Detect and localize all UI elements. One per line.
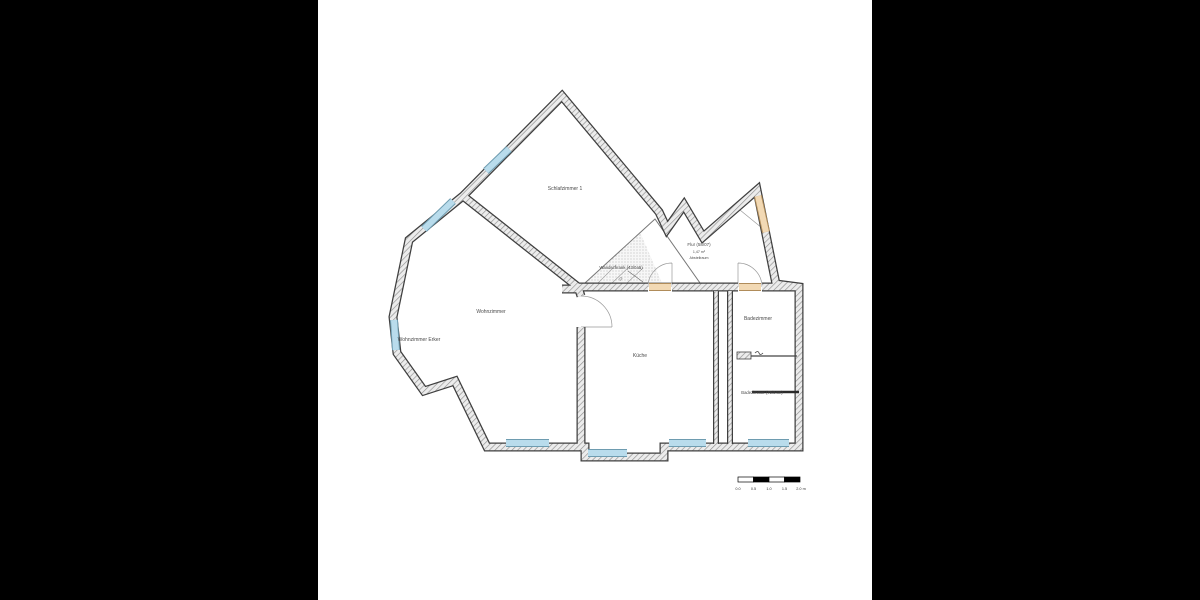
flur-label: Flur (58/07) <box>687 242 711 247</box>
floorplan-canvas: Schlafzimmer 1 Wohnzimmer Wohnzimmer Erk… <box>0 0 1200 600</box>
room-label-kueche: Küche <box>633 353 647 359</box>
flur-note-1: 1,47 m² <box>693 250 706 254</box>
scale-label-0: 0.0 <box>735 487 740 491</box>
floorplan-svg: Schlafzimmer 1 Wohnzimmer Wohnzimmer Erk… <box>0 0 1200 600</box>
scale-label-3: 1.5 <box>782 487 787 491</box>
window-3 <box>394 320 396 350</box>
scale-label-1: 0.5 <box>751 487 756 491</box>
left-letterbox-bar <box>0 0 318 600</box>
room-label-schlafzimmer: Schlafzimmer 1 <box>548 186 583 192</box>
right-letterbox-bar <box>872 0 1200 600</box>
scale-label-2: 1.0 <box>766 487 771 491</box>
room-label-wohnzimmer: Wohnzimmer <box>476 309 506 315</box>
room-label-badezimmer-2: Badezimmer (79/94m) <box>741 390 783 395</box>
room-label-badezimmer-1: Badezimmer <box>744 316 772 322</box>
scale-label-4: 2.0 m <box>796 487 806 491</box>
flur-note-2: Abstellraum <box>690 256 709 260</box>
room-label-wohnzimmer-erker: Wohnzimmer Erker <box>398 337 441 343</box>
wandschrank-label: Wandschrank (43/0a5) <box>599 265 643 270</box>
scale-bar-cells <box>738 477 800 482</box>
